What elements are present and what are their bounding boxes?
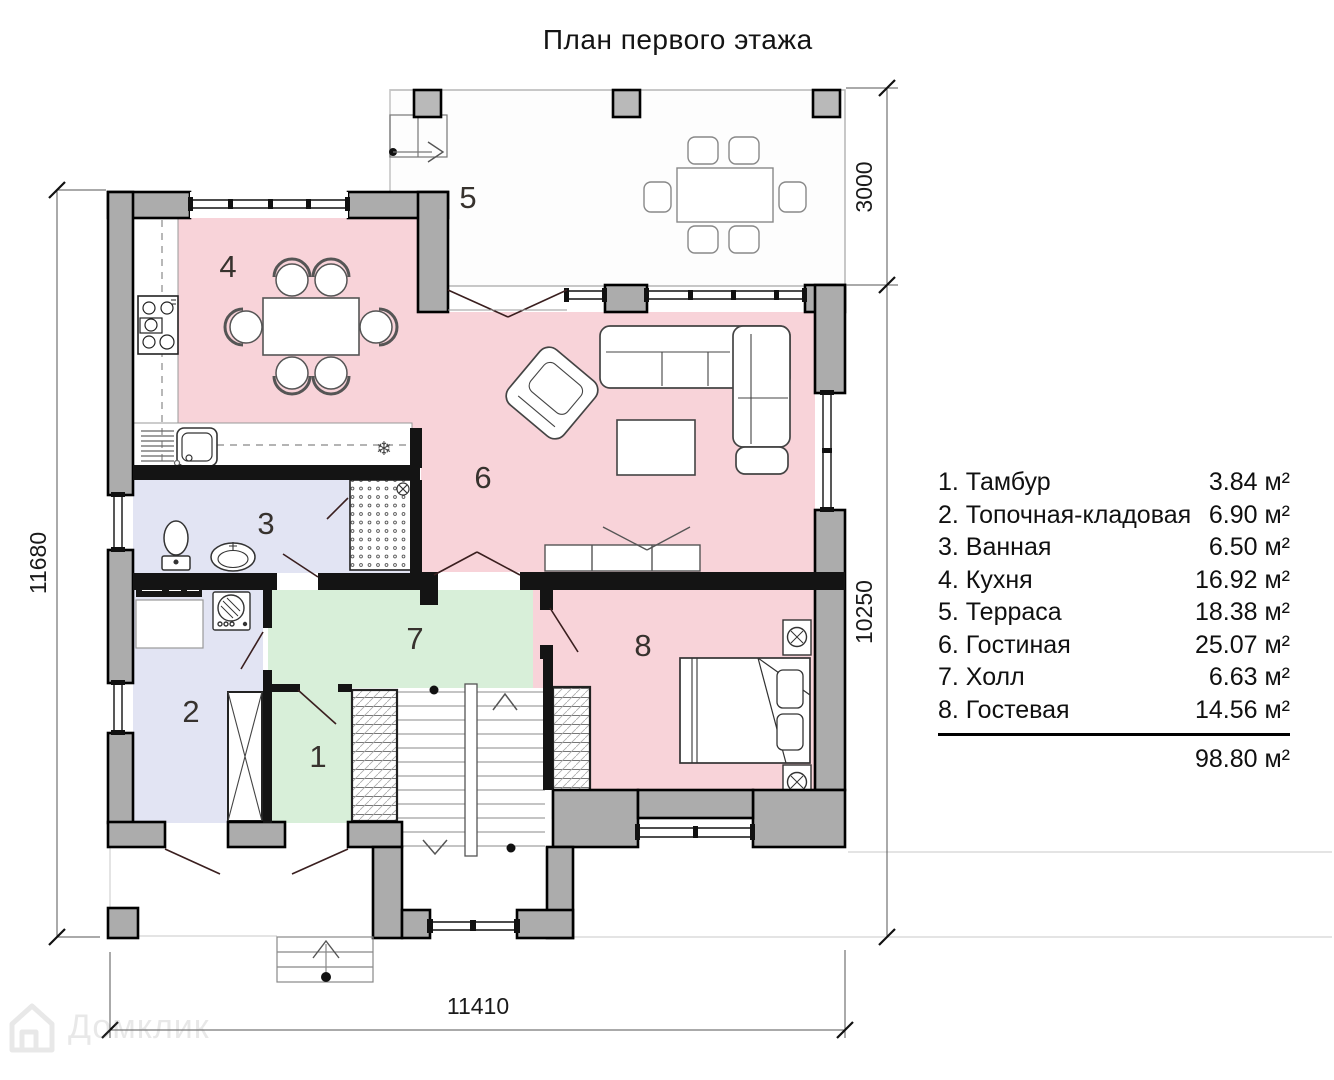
washing-machine	[213, 592, 250, 630]
legend-room-area: 25.07 м²	[1195, 629, 1290, 662]
legend-row: 2. Топочная-кладовая 6.90 м²	[938, 499, 1290, 532]
window	[820, 390, 834, 512]
terrace-column	[813, 90, 840, 117]
legend-room-area: 14.56 м²	[1195, 694, 1290, 727]
kitchen-sink	[177, 428, 217, 466]
dining-chair	[313, 259, 349, 296]
terrace-chair	[688, 137, 718, 164]
page-title: План первого этажа	[543, 24, 813, 56]
legend-room-area: 6.50 м²	[1209, 531, 1290, 564]
watermark-house-icon	[6, 998, 58, 1056]
legend-row: 7. Холл 6.63 м²	[938, 661, 1290, 694]
window	[111, 492, 125, 552]
built-in-wardrobe	[352, 690, 397, 821]
pillow	[777, 714, 803, 750]
watermark: Домклик	[6, 998, 210, 1056]
terrace-chair	[644, 182, 671, 212]
dining-chair	[274, 357, 310, 394]
pillow	[777, 670, 803, 708]
entry-steps	[277, 937, 373, 982]
room-label-7: 7	[406, 621, 423, 656]
dining-chair	[274, 259, 310, 296]
terrace-chair	[729, 137, 759, 164]
bed	[680, 658, 810, 763]
legend-room-name: 5. Терраса	[938, 596, 1062, 629]
legend-row: 4. Кухня 16.92 м²	[938, 564, 1290, 597]
terrace-chair	[779, 182, 806, 212]
terrace-chair	[688, 226, 718, 253]
room-label-1: 1	[309, 739, 326, 774]
legend-room-name: 7. Холл	[938, 661, 1025, 694]
porch-column	[108, 908, 138, 938]
legend-room-area: 3.84 м²	[1209, 466, 1290, 499]
shower	[350, 480, 412, 570]
toilet	[162, 521, 190, 570]
terrace-column	[414, 90, 441, 117]
floor-plan-page: ❄	[0, 0, 1334, 1080]
legend-total-divider	[938, 733, 1290, 736]
legend-room-area: 16.92 м²	[1195, 564, 1290, 597]
room-label-5: 5	[459, 180, 476, 215]
equipment-box	[136, 600, 203, 648]
legend-room-name: 4. Кухня	[938, 564, 1033, 597]
window	[188, 192, 350, 218]
terrace-column	[613, 90, 640, 117]
entry-point-dot	[321, 972, 331, 982]
fridge-icon: ❄	[376, 439, 392, 460]
wardrobe-crossed	[228, 692, 262, 821]
legend-room-name: 1. Тамбур	[938, 466, 1051, 499]
room-label-8: 8	[634, 628, 651, 663]
legend-room-area: 18.38 м²	[1195, 596, 1290, 629]
dining-table	[263, 298, 359, 355]
dimension-label-right-top: 3000	[851, 161, 877, 212]
nightstand	[783, 620, 811, 655]
coffee-table	[617, 420, 695, 475]
room-label-6: 6	[474, 460, 491, 495]
watermark-text: Домклик	[68, 1008, 210, 1047]
dining-chair	[360, 309, 397, 345]
dimension-label-bottom: 11410	[447, 993, 509, 1019]
terrace-table	[677, 168, 773, 222]
window	[111, 680, 125, 735]
legend-room-name: 6. Гостиная	[938, 629, 1071, 662]
kitchen-stove	[138, 296, 178, 354]
terrace-chair	[729, 226, 759, 253]
legend-row: 8. Гостевая 14.56 м²	[938, 694, 1290, 727]
window	[644, 288, 807, 302]
legend-row: 1. Тамбур 3.84 м²	[938, 466, 1290, 499]
legend-room-name: 8. Гостевая	[938, 694, 1070, 727]
porch-left-door	[165, 849, 220, 874]
window	[635, 824, 755, 840]
room-label-4: 4	[219, 249, 236, 284]
front-door	[292, 849, 348, 874]
dining-chair	[225, 309, 262, 345]
legend-room-name: 2. Топочная-кладовая	[938, 499, 1191, 532]
room-legend: 1. Тамбур 3.84 м² 2. Топочная-кладовая 6…	[938, 466, 1290, 774]
stair-start-dot	[430, 686, 439, 695]
room-5-terrace-floor	[390, 90, 845, 286]
legend-room-area: 6.63 м²	[1209, 661, 1290, 694]
dimension-label-right-bottom: 10250	[851, 580, 877, 644]
bathroom-sink	[211, 542, 255, 571]
legend-row: 5. Терраса 18.38 м²	[938, 596, 1290, 629]
stair-stringer	[465, 684, 477, 856]
legend-room-name: 3. Ванная	[938, 531, 1051, 564]
legend-total-area: 98.80 м²	[938, 745, 1290, 774]
legend-room-area: 6.90 м²	[1209, 499, 1290, 532]
room-label-2: 2	[182, 694, 199, 729]
dimension-label-left: 11680	[25, 532, 51, 594]
dining-chair	[313, 357, 349, 394]
stair-end-dot	[507, 844, 516, 853]
legend-row: 3. Ванная 6.50 м²	[938, 531, 1290, 564]
legend-row: 6. Гостиная 25.07 м²	[938, 629, 1290, 662]
window	[564, 288, 607, 302]
room-label-3: 3	[257, 506, 274, 541]
